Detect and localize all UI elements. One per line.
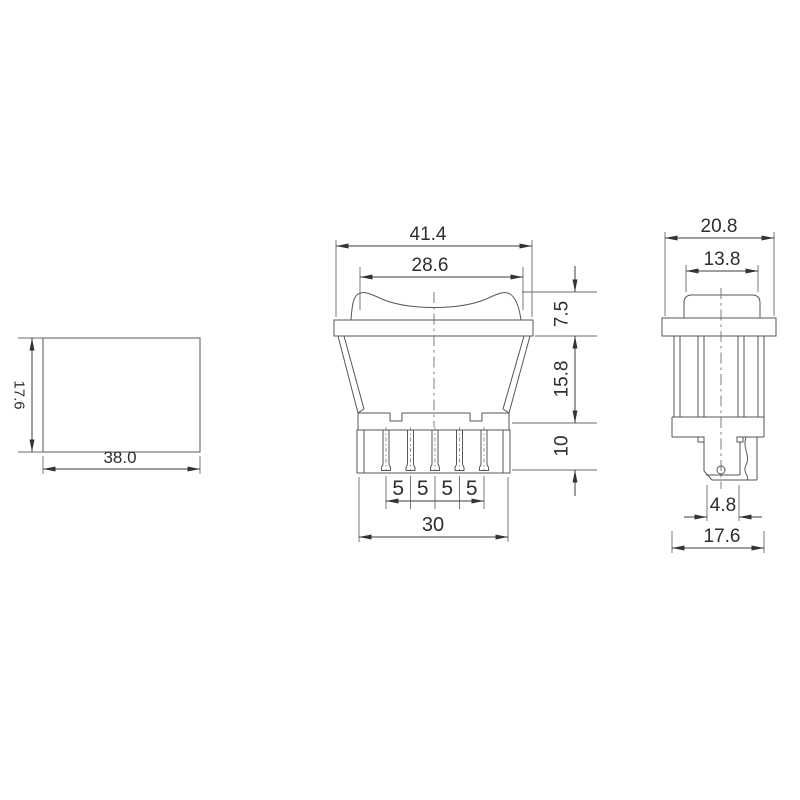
terminal-base-front <box>357 427 510 473</box>
dim-panel-width-label: 38.0 <box>103 448 136 467</box>
dim-side-rocker-width-label: 13.8 <box>704 249 741 270</box>
dim-pin-pitch-label-2: 5 <box>417 477 429 500</box>
dim-pin-pitch-label-4: 5 <box>466 477 478 500</box>
flange-side <box>672 417 764 442</box>
dim-front-rocker-width-label: 28.6 <box>412 255 449 276</box>
terminal-pin <box>382 427 391 471</box>
dim-side-body-width-label: 17.6 <box>704 526 741 547</box>
pin-pitch-dimension: 5 5 5 5 <box>386 476 484 509</box>
dim-front-bezel-height-label: 7.5 <box>552 301 573 327</box>
terminal-side <box>704 437 757 480</box>
front-height-dimensions: 7.5 15.8 10 <box>512 266 597 496</box>
side-view: 20.8 13.8 <box>662 216 776 553</box>
bezel-side <box>662 318 776 336</box>
dim-pin-pitch-label-3: 5 <box>441 477 453 500</box>
dim-front-body-height-label: 15.8 <box>552 361 573 398</box>
drawing-canvas: 17.6 38.0 41.4 28.6 <box>0 0 800 800</box>
rocker-cap-side <box>684 295 760 318</box>
panel-cutout-rectangle <box>43 338 200 452</box>
dim-side-overall-width-label: 20.8 <box>701 216 738 237</box>
dim-panel-height-label: 17.6 <box>11 380 28 409</box>
dim-pin-pitch-label-1: 5 <box>392 477 404 500</box>
terminal-pin <box>455 427 464 471</box>
technical-drawing: 17.6 38.0 41.4 28.6 <box>0 0 800 800</box>
rocker-cap-front <box>351 293 521 320</box>
switch-body-side <box>674 336 764 417</box>
terminal-pin <box>480 427 489 471</box>
front-view: 41.4 28.6 <box>334 224 597 542</box>
bracket-break-line <box>745 437 748 480</box>
terminal-pin <box>406 427 415 471</box>
terminal-pin <box>431 427 440 471</box>
dim-front-terminal-height-label: 10 <box>552 435 573 456</box>
bezel-front <box>334 320 533 336</box>
dim-side-terminal-width-label: 4.8 <box>710 495 736 516</box>
dim-front-terminal-span-label: 30 <box>422 514 444 536</box>
panel-cutout-view: 17.6 38.0 <box>11 338 201 474</box>
dim-front-overall-width-label: 41.4 <box>410 224 447 245</box>
